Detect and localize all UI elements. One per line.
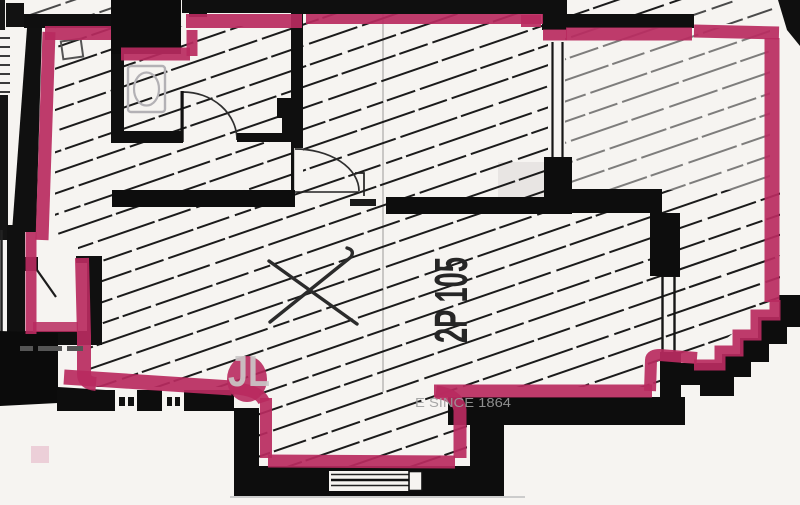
svg-text:2P 105: 2P 105 xyxy=(425,257,477,343)
svg-text:E SINCE 1864: E SINCE 1864 xyxy=(415,395,511,410)
svg-text:JL: JL xyxy=(228,347,270,396)
